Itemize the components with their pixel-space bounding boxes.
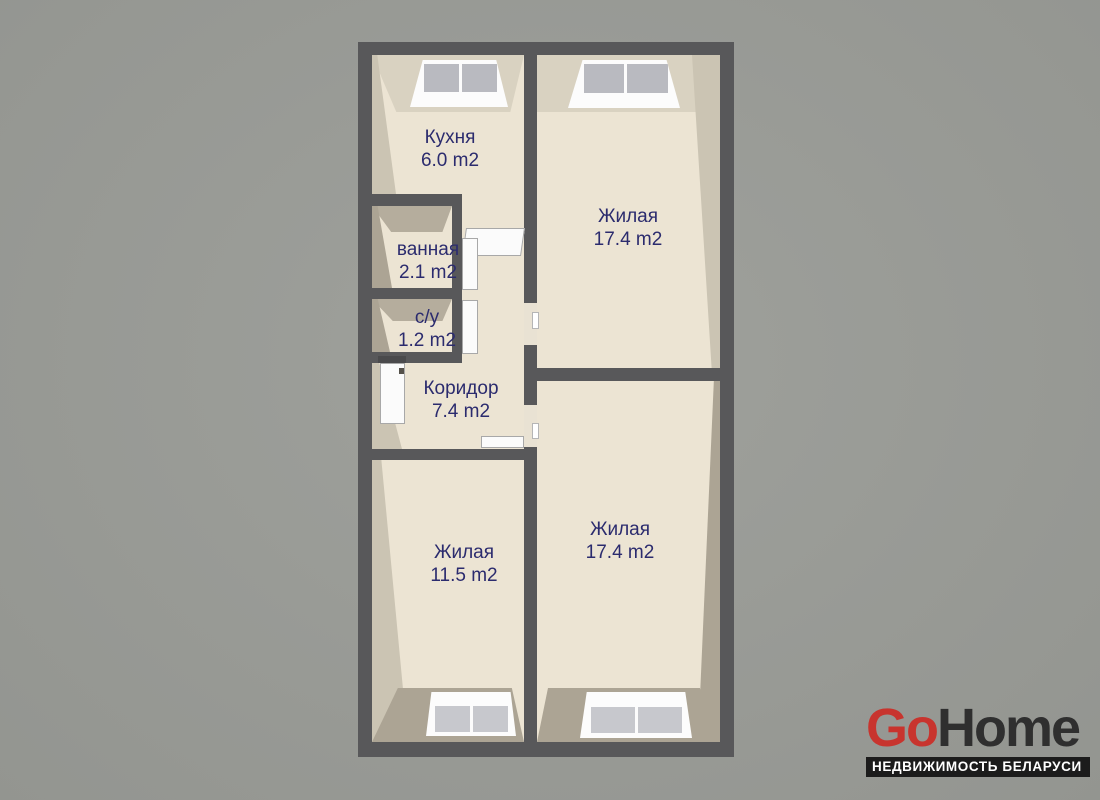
room-area: 17.4 m2 [586,541,655,564]
living-left-door [481,436,524,448]
room-name: Коридор [423,377,498,400]
floor-plan: Кухня 6.0 m2 Жилая 17.4 m2 ванная 2.1 m2… [358,42,734,757]
bathroom-door [462,238,478,290]
living-top-window [568,60,680,108]
room-area: 7.4 m2 [423,400,498,423]
room-name: Жилая [586,518,655,541]
room-area: 17.4 m2 [594,228,663,251]
logo-go-text: Go [866,698,937,758]
screenshot-canvas: Кухня 6.0 m2 Жилая 17.4 m2 ванная 2.1 m2… [0,0,1100,800]
logo-tagline: НЕДВИЖИМОСТЬ БЕЛАРУСИ [866,757,1090,777]
room-name: Кухня [421,126,479,149]
window-pane [627,64,667,93]
gohome-wordmark: GoHome [866,700,1090,756]
room-label-wc: с/у 1.2 m2 [398,306,456,352]
wc-door [462,300,478,354]
room-label-living-bottom: Жилая 17.4 m2 [586,518,655,564]
room-label-living-left: Жилая 11.5 m2 [430,541,497,587]
window-pane [424,64,459,92]
window-pane [462,64,497,92]
living-bottom-window [580,692,692,738]
room-name: Жилая [594,205,663,228]
window-pane [638,707,682,734]
living-bottom-door [532,423,539,439]
living-left-window [426,692,516,736]
room-name: с/у [398,306,456,329]
window-pane [584,64,624,93]
room-area: 2.1 m2 [397,261,459,284]
room-label-corridor: Коридор 7.4 m2 [423,377,498,423]
kitchen-window [410,60,508,107]
living-top-door [532,312,539,329]
entrance-door-handle [399,368,404,374]
gohome-logo: GoHome НЕДВИЖИМОСТЬ БЕЛАРУСИ [866,700,1090,777]
room-area: 1.2 m2 [398,329,456,352]
window-pane [435,706,470,732]
room-area: 6.0 m2 [421,149,479,172]
room-name: ванная [397,238,459,261]
entrance-door-lintel [378,356,406,363]
room-area: 11.5 m2 [430,564,497,587]
logo-home-text: Home [937,698,1079,758]
room-name: Жилая [430,541,497,564]
window-pane [591,707,635,734]
window-pane [473,706,508,732]
room-label-bathroom: ванная 2.1 m2 [397,238,459,284]
room-label-kitchen: Кухня 6.0 m2 [421,126,479,172]
room-label-living-top: Жилая 17.4 m2 [594,205,663,251]
